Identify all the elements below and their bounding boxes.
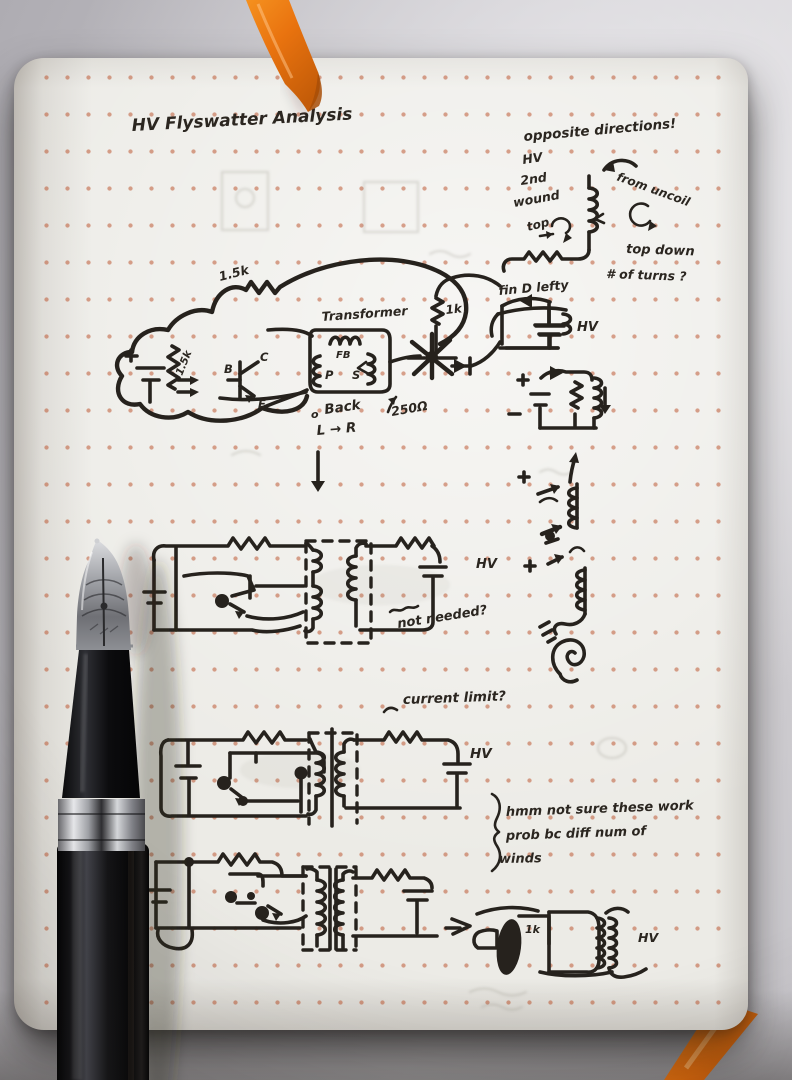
circuit-row3: current limit? HV bbox=[161, 688, 507, 826]
annotation-hmm: hmm not sure these work prob bc diff num… bbox=[492, 794, 695, 871]
spiral-mark bbox=[553, 640, 584, 674]
ribbon-strap bbox=[246, 0, 320, 112]
transistor-blob bbox=[494, 918, 525, 977]
hv-output-label-row2: HV bbox=[476, 557, 498, 572]
photo-scene: HV Flyswatter Analysis opposite directio… bbox=[0, 0, 792, 1080]
back-node-label: o bbox=[311, 408, 319, 421]
nib-slit bbox=[103, 558, 104, 646]
circuit-row1-main: 1.5k 1.5k B C E Transformer FB P S o bbox=[117, 260, 563, 439]
mini-resistor-label: 1k bbox=[525, 923, 541, 936]
transistor-emitter-label: E bbox=[258, 397, 266, 411]
ribbon-bookmark bbox=[246, 0, 322, 113]
transistor-collector-label: C bbox=[260, 350, 269, 364]
secondary-label: S bbox=[352, 368, 360, 382]
note-2nd: 2nd bbox=[519, 169, 548, 188]
page-title: HV Flyswatter Analysis bbox=[131, 104, 353, 136]
hv-output-label-row3: HV bbox=[470, 746, 493, 762]
note-hv: HV bbox=[521, 149, 544, 167]
feedback-winding-label: FB bbox=[336, 350, 350, 361]
note-opposite-directions: opposite directions! bbox=[523, 116, 677, 145]
note-top: top bbox=[525, 215, 551, 234]
plus-mark bbox=[519, 472, 529, 482]
resistor-1k bbox=[432, 298, 443, 324]
pen-chrome-band bbox=[58, 799, 145, 851]
back-label: Back bbox=[323, 397, 362, 418]
note-from-uncoil: from uncoil bbox=[615, 170, 693, 210]
primary-label: P bbox=[325, 368, 334, 382]
circuit-row4 bbox=[149, 854, 470, 951]
note-winding-directions: opposite directions! HV 2nd wound top fr… bbox=[491, 116, 695, 348]
resistor-1p5k-top-label: 1.5k bbox=[217, 262, 251, 284]
pencil-ghosts bbox=[222, 172, 626, 1010]
feedback-winding bbox=[330, 337, 360, 344]
transistor-base-label: B bbox=[224, 362, 233, 376]
mini-circuit-bottom-right: 1k HV bbox=[474, 908, 659, 978]
hv-output-label-mini: HV bbox=[638, 930, 659, 945]
load-250ohm-label: 250Ω bbox=[390, 398, 429, 419]
note-current-limit: current limit? bbox=[403, 688, 507, 708]
transformer-label: Transformer bbox=[321, 303, 409, 324]
note-num-turns: # of turns ? bbox=[606, 266, 687, 284]
note-wound: wound bbox=[512, 187, 562, 210]
l-to-r-label: L → R bbox=[316, 420, 357, 439]
plus-mark bbox=[525, 561, 535, 571]
pen-barrel bbox=[57, 842, 149, 1080]
ground-symbol bbox=[540, 622, 555, 642]
fountain-pen bbox=[57, 539, 182, 1080]
resistor-1k-label: 1k bbox=[445, 301, 464, 317]
note-hmm-2: prob bc diff num of bbox=[505, 824, 649, 844]
note-hmm-1: hmm not sure these work bbox=[506, 798, 696, 820]
ink-and-objects-layer: HV Flyswatter Analysis opposite directio… bbox=[0, 0, 792, 1080]
note-hmm-3: winds bbox=[499, 851, 542, 867]
transition-arrow bbox=[311, 452, 325, 492]
coil bbox=[594, 378, 602, 418]
note-top-down: top down bbox=[626, 242, 695, 259]
hv-output-label-top: HV bbox=[577, 320, 599, 335]
note-fin-d-lefty: fin D lefty bbox=[498, 277, 570, 298]
plus-mark bbox=[518, 375, 528, 385]
primary-winding bbox=[313, 356, 320, 386]
circuit-row1-battery-coil bbox=[509, 366, 611, 428]
winding-column-sketch bbox=[519, 452, 585, 682]
pen-grip-section bbox=[62, 650, 140, 798]
secondary-winding bbox=[368, 354, 375, 384]
winding-coil-sketch bbox=[589, 188, 597, 232]
